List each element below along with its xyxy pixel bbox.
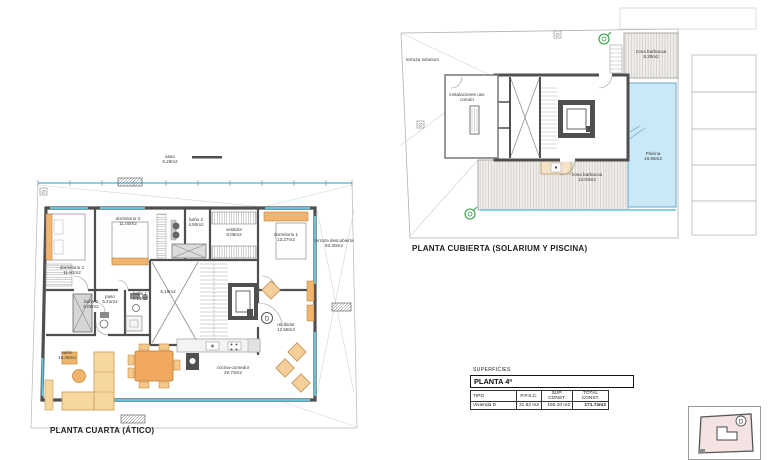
cubierta-core-building xyxy=(495,75,628,175)
col-sup-const: SUP. CONST. xyxy=(542,391,573,402)
col-tipo: TIPO xyxy=(471,391,517,402)
zone-label-instalaciones: instalaciones uso común xyxy=(447,92,487,103)
col-total-const: TOTAL CONST. xyxy=(573,391,609,402)
room-label-bano-2: baño 2 4.90m2 xyxy=(181,217,211,228)
diameter-symbol: ∅ xyxy=(418,123,422,129)
diameter-symbol: ∅ xyxy=(41,190,45,196)
room-label-stairwell-area: 5.19m2 xyxy=(154,289,182,294)
table-row: Vivienda D 21.62 m2 150.10 m2 171.72m2 xyxy=(471,402,609,410)
key-plan-drawing: D xyxy=(689,407,760,459)
atico-plan-title: PLANTA CUARTA (ÁTICO) xyxy=(50,426,154,435)
planta-header-box: PLANTA 4ª xyxy=(470,375,634,388)
cell-ppsc: 21.62 m2 xyxy=(517,402,542,410)
atico-stair-core xyxy=(152,262,228,343)
room-label-recibidor: recibidor 12.58m2 xyxy=(262,322,310,333)
pool xyxy=(628,83,676,207)
zone-label-barbacoa-top: zona barbacoa 9.30m2 xyxy=(629,49,673,60)
key-plan: D xyxy=(688,406,761,460)
diameter-symbol: ∅ xyxy=(555,33,559,39)
room-label-cocina-comedor: cocina-comedor 20.73m2 xyxy=(203,365,263,376)
cell-tipo: Vivienda D xyxy=(471,402,517,410)
room-label-bano-1: baño 1 4.14m2 xyxy=(126,291,154,302)
room-label-terraza-descubierta: terraza descubierta 83.30m2 xyxy=(309,238,359,249)
room-label-dormitorio-1: dormitorio 1 13.27m2 xyxy=(261,232,311,243)
zone-label-barbacoa-bottom: zona barbacoa 13.03m2 xyxy=(564,172,610,183)
atico-elevator xyxy=(228,283,258,320)
floorplan-linework: ∅ xyxy=(0,0,770,460)
room-label-aseo: aseo 5.29m2 xyxy=(152,154,188,165)
superficies-label: SUPERFICIES xyxy=(473,367,511,373)
room-label-dormitorio-2: dormitorio 2 11.91m2 xyxy=(47,265,97,276)
surfaces-table: TIPO P.P.S.C. SUP. CONST. TOTAL CONST. V… xyxy=(470,390,609,410)
room-label-paso: paso 5.21m2 xyxy=(98,294,122,305)
room-label-salon: salón 16.45m2 xyxy=(49,350,85,361)
cell-sup-const: 150.10 m2 xyxy=(542,402,573,410)
table-header-row: TIPO P.P.S.C. SUP. CONST. TOTAL CONST. xyxy=(471,391,609,402)
key-plan-unit-marker: D xyxy=(739,419,744,425)
installations-room xyxy=(445,75,498,158)
cubierta-plan-title: PLANTA CUBIERTA (SOLARIUM Y PISCINA) xyxy=(412,244,587,253)
col-ppsc: P.P.S.C. xyxy=(517,391,542,402)
zone-label-piscina: Piscina 16.96m2 xyxy=(637,151,669,162)
architectural-sheet: ∅ xyxy=(0,0,770,460)
room-label-vestidor: vestidor 8.05m2 xyxy=(214,227,254,238)
zone-label-terraza-solarium: terraza solarium xyxy=(406,57,452,62)
room-label-dormitorio-3: dormitorio 3 11.00m2 xyxy=(102,216,154,227)
cell-total-const: 171.72m2 xyxy=(573,402,609,410)
